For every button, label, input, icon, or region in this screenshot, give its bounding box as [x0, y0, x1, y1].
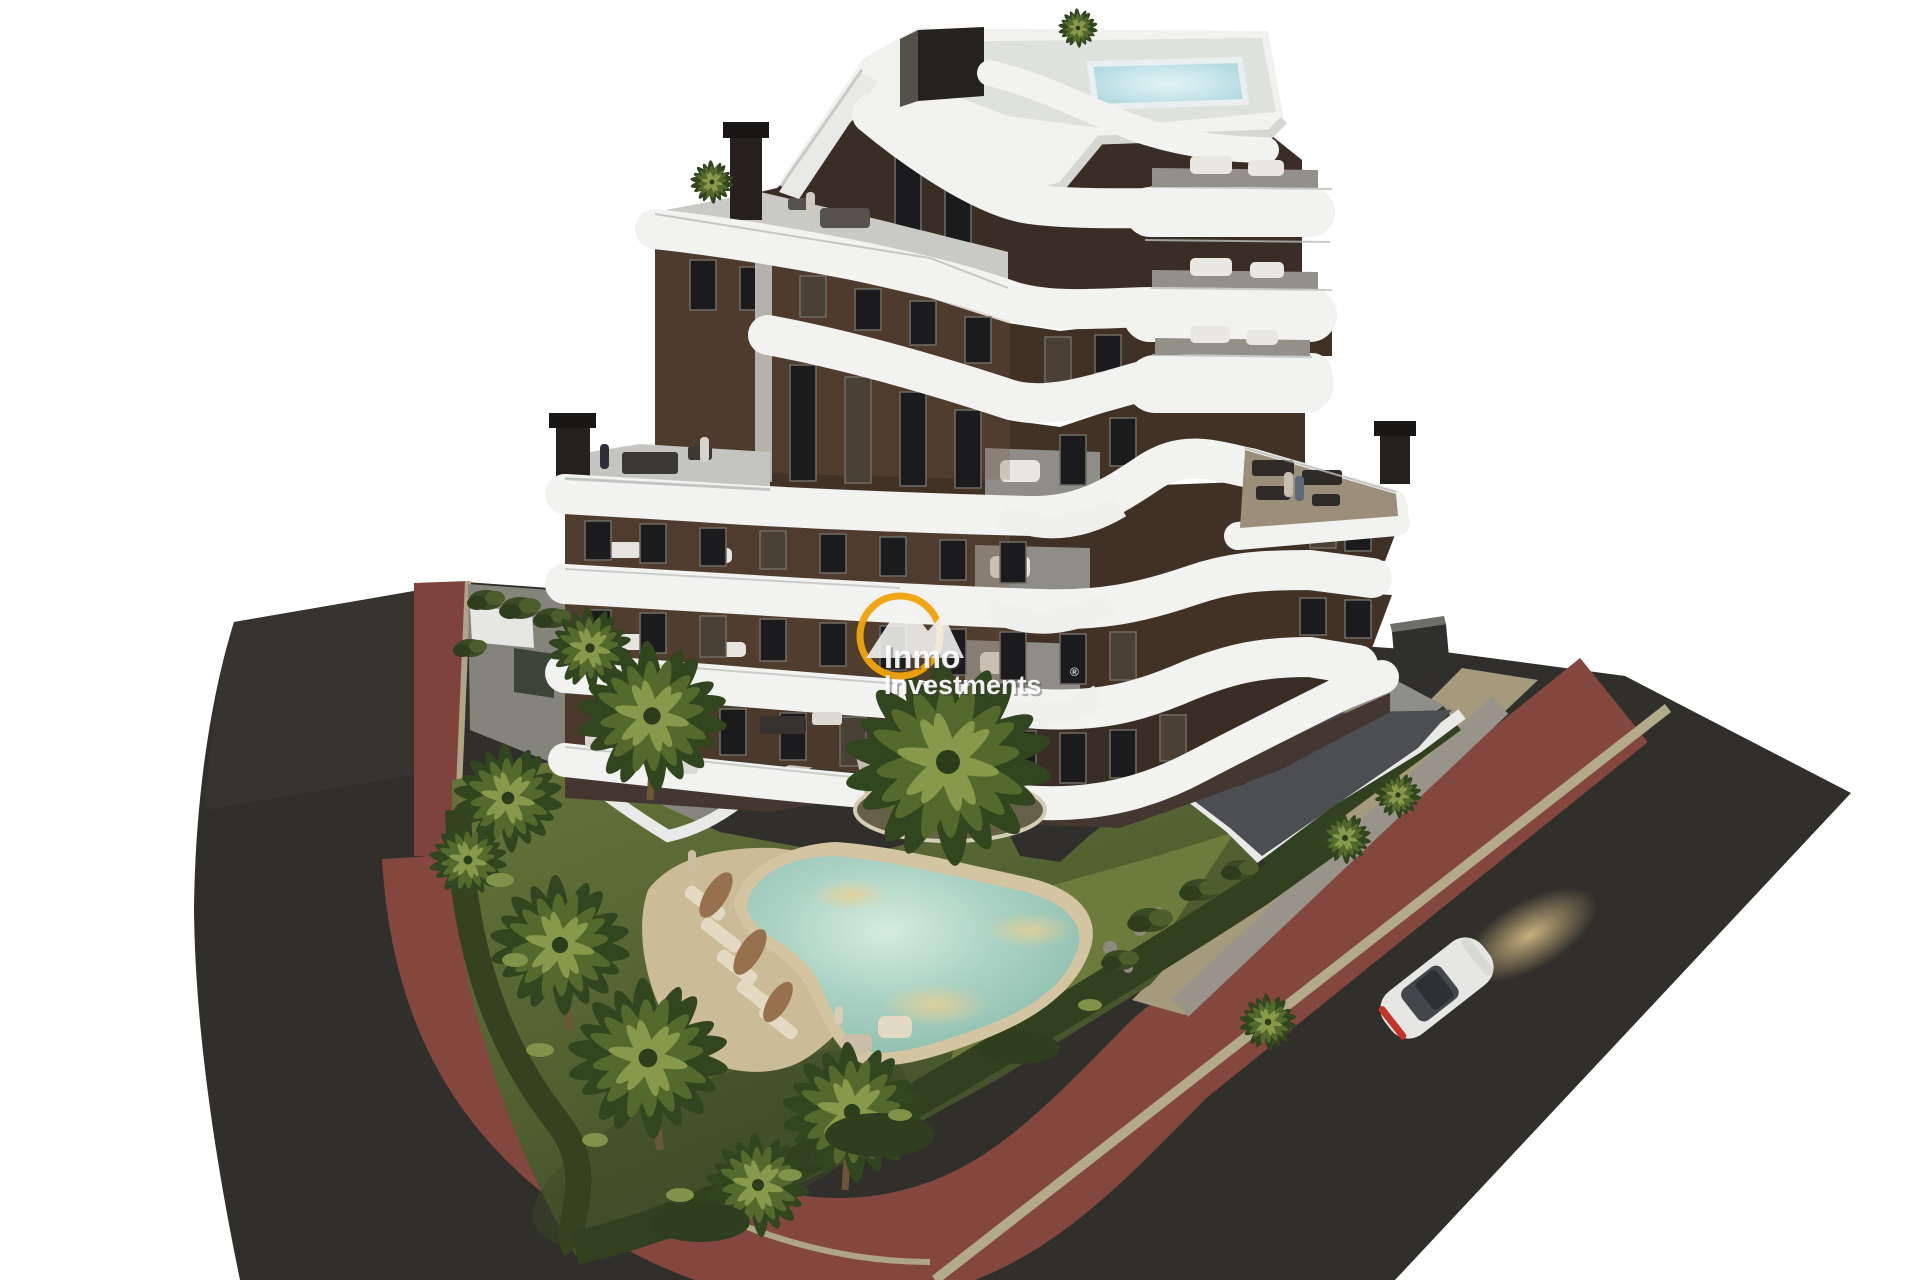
svg-text:®: ®	[1070, 665, 1079, 679]
svg-text:Investments: Investments	[884, 670, 1042, 700]
